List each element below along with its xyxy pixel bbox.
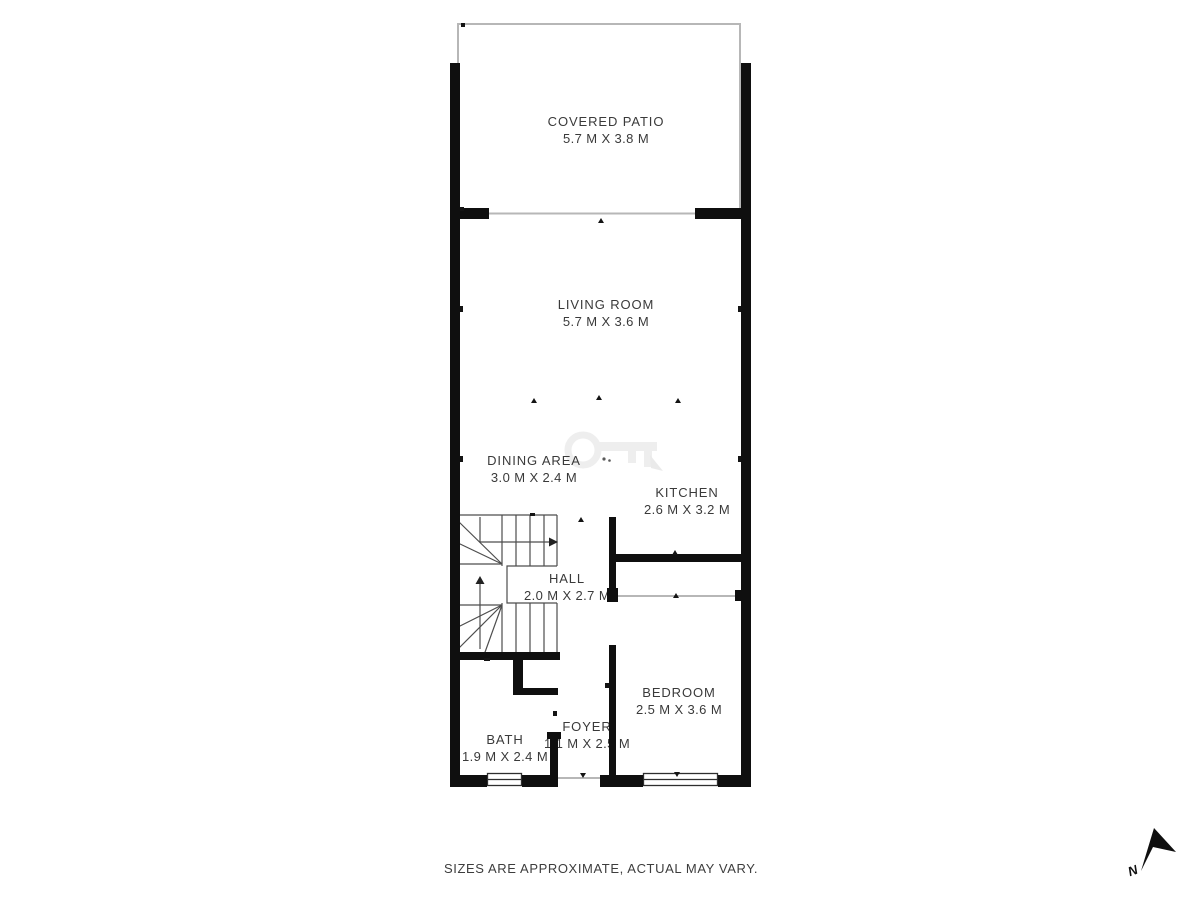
room-name: HALL: [524, 570, 610, 587]
room-name: FOYER: [544, 718, 630, 735]
room-label-covered-patio: COVERED PATIO 5.7 M X 3.8 M: [548, 113, 665, 147]
room-dims: 5.7 M X 3.8 M: [548, 130, 665, 147]
room-dims: 1.1 M X 2.5 M: [544, 735, 630, 752]
room-dims: 2.5 M X 3.6 M: [636, 701, 722, 718]
room-label-dining-area: DINING AREA 3.0 M X 2.4 M: [487, 452, 581, 486]
compass-n-label: N: [1126, 862, 1140, 879]
room-label-foyer: FOYER 1.1 M X 2.5 M: [544, 718, 630, 752]
room-name: DINING AREA: [487, 452, 581, 469]
room-label-bath: BATH 1.9 M X 2.4 M: [462, 731, 548, 765]
room-dims: 2.6 M X 3.2 M: [644, 501, 730, 518]
room-label-living-room: LIVING ROOM 5.7 M X 3.6 M: [558, 296, 655, 330]
room-dims: 3.0 M X 2.4 M: [487, 469, 581, 486]
room-name: LIVING ROOM: [558, 296, 655, 313]
room-name: COVERED PATIO: [548, 113, 665, 130]
room-label-hall: HALL 2.0 M X 2.7 M: [524, 570, 610, 604]
room-name: KITCHEN: [644, 484, 730, 501]
room-label-kitchen: KITCHEN 2.6 M X 3.2 M: [644, 484, 730, 518]
room-label-bedroom: BEDROOM 2.5 M X 3.6 M: [636, 684, 722, 718]
room-dims: 2.0 M X 2.7 M: [524, 587, 610, 604]
room-dims: 5.7 M X 3.6 M: [558, 313, 655, 330]
disclaimer-text: SIZES ARE APPROXIMATE, ACTUAL MAY VARY.: [444, 861, 758, 876]
floor-plan-page: COVERED PATIO 5.7 M X 3.8 M LIVING ROOM …: [0, 0, 1200, 900]
room-labels: COVERED PATIO 5.7 M X 3.8 M LIVING ROOM …: [0, 0, 1200, 900]
room-dims: 1.9 M X 2.4 M: [462, 748, 548, 765]
room-name: BATH: [462, 731, 548, 748]
room-name: BEDROOM: [636, 684, 722, 701]
